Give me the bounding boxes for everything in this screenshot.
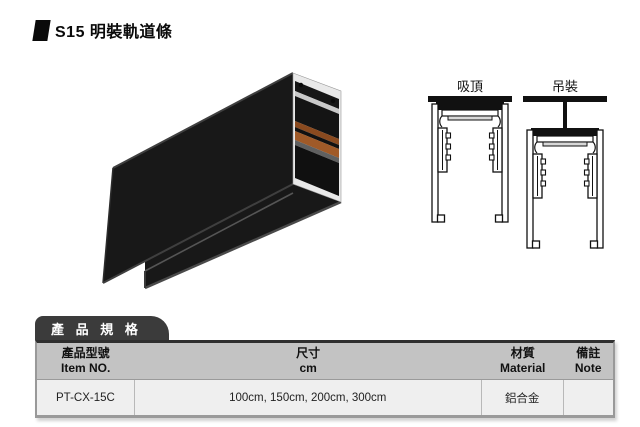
spec-table-tab-label: 產 品 規 格 <box>51 319 142 338</box>
cell-material: 鋁合金 <box>481 380 563 415</box>
page-title-row: S15 明裝軌道條 <box>34 18 172 42</box>
column-header-material-zh: 材質 <box>511 346 535 361</box>
spec-table-grid: 產品型號 Item NO. 尺寸 cm 材質 Material 備註 Note … <box>35 340 615 418</box>
column-header-material: 材質 Material <box>482 343 564 379</box>
catalog-page: S15 明裝軌道條 吸頂 吊裝 <box>0 0 640 427</box>
cell-size: 100cm, 150cm, 200cm, 300cm <box>134 380 481 415</box>
column-header-item-no-zh: 產品型號 <box>62 346 110 361</box>
column-header-note-zh: 備註 <box>576 346 600 361</box>
spec-table: 產 品 規 格 產品型號 Item NO. 尺寸 cm 材質 Material … <box>35 316 615 418</box>
diagram-label-suspended-mount: 吊裝 <box>523 76 607 95</box>
column-header-note-en: Note <box>575 361 602 376</box>
cell-note <box>563 380 613 415</box>
page-title: S15 明裝軌道條 <box>55 18 172 42</box>
column-header-size: 尺寸 cm <box>134 343 482 379</box>
diagram-label-ceiling-mount: 吸頂 <box>428 76 512 95</box>
column-header-material-en: Material <box>500 361 545 376</box>
spec-table-header-row: 產品型號 Item NO. 尺寸 cm 材質 Material 備註 Note <box>37 343 613 380</box>
spec-table-data-row: PT-CX-15C 100cm, 150cm, 200cm, 300cm 鋁合金 <box>37 380 613 415</box>
column-header-note: 備註 Note <box>563 343 613 379</box>
title-square-marker-icon <box>32 20 50 41</box>
column-header-item-no: 產品型號 Item NO. <box>37 343 134 379</box>
column-header-size-en: cm <box>299 361 316 376</box>
diagram-ceiling-mount-cross-section <box>428 96 512 230</box>
column-header-item-no-en: Item NO. <box>61 361 110 376</box>
diagram-suspended-mount-cross-section <box>523 96 607 254</box>
spec-table-tab: 產 品 規 格 <box>35 316 169 340</box>
cell-item-no: PT-CX-15C <box>37 380 134 415</box>
product-track-3d-image <box>80 52 360 297</box>
column-header-size-zh: 尺寸 <box>296 346 320 361</box>
